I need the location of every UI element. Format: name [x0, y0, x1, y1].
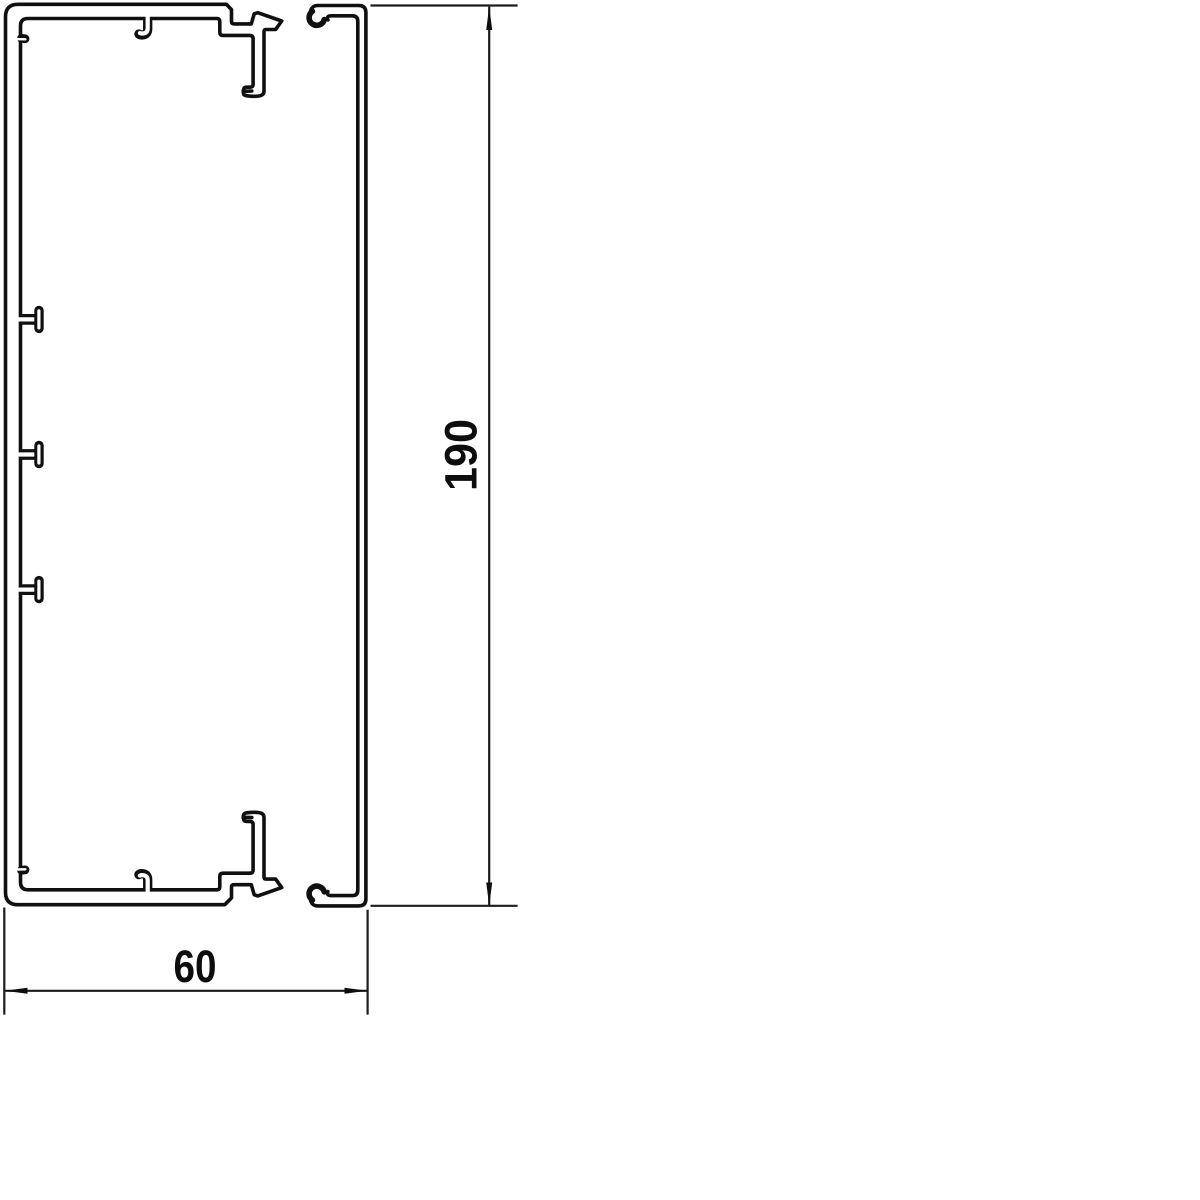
svg-text:60: 60: [174, 941, 217, 992]
svg-text:190: 190: [436, 419, 487, 491]
